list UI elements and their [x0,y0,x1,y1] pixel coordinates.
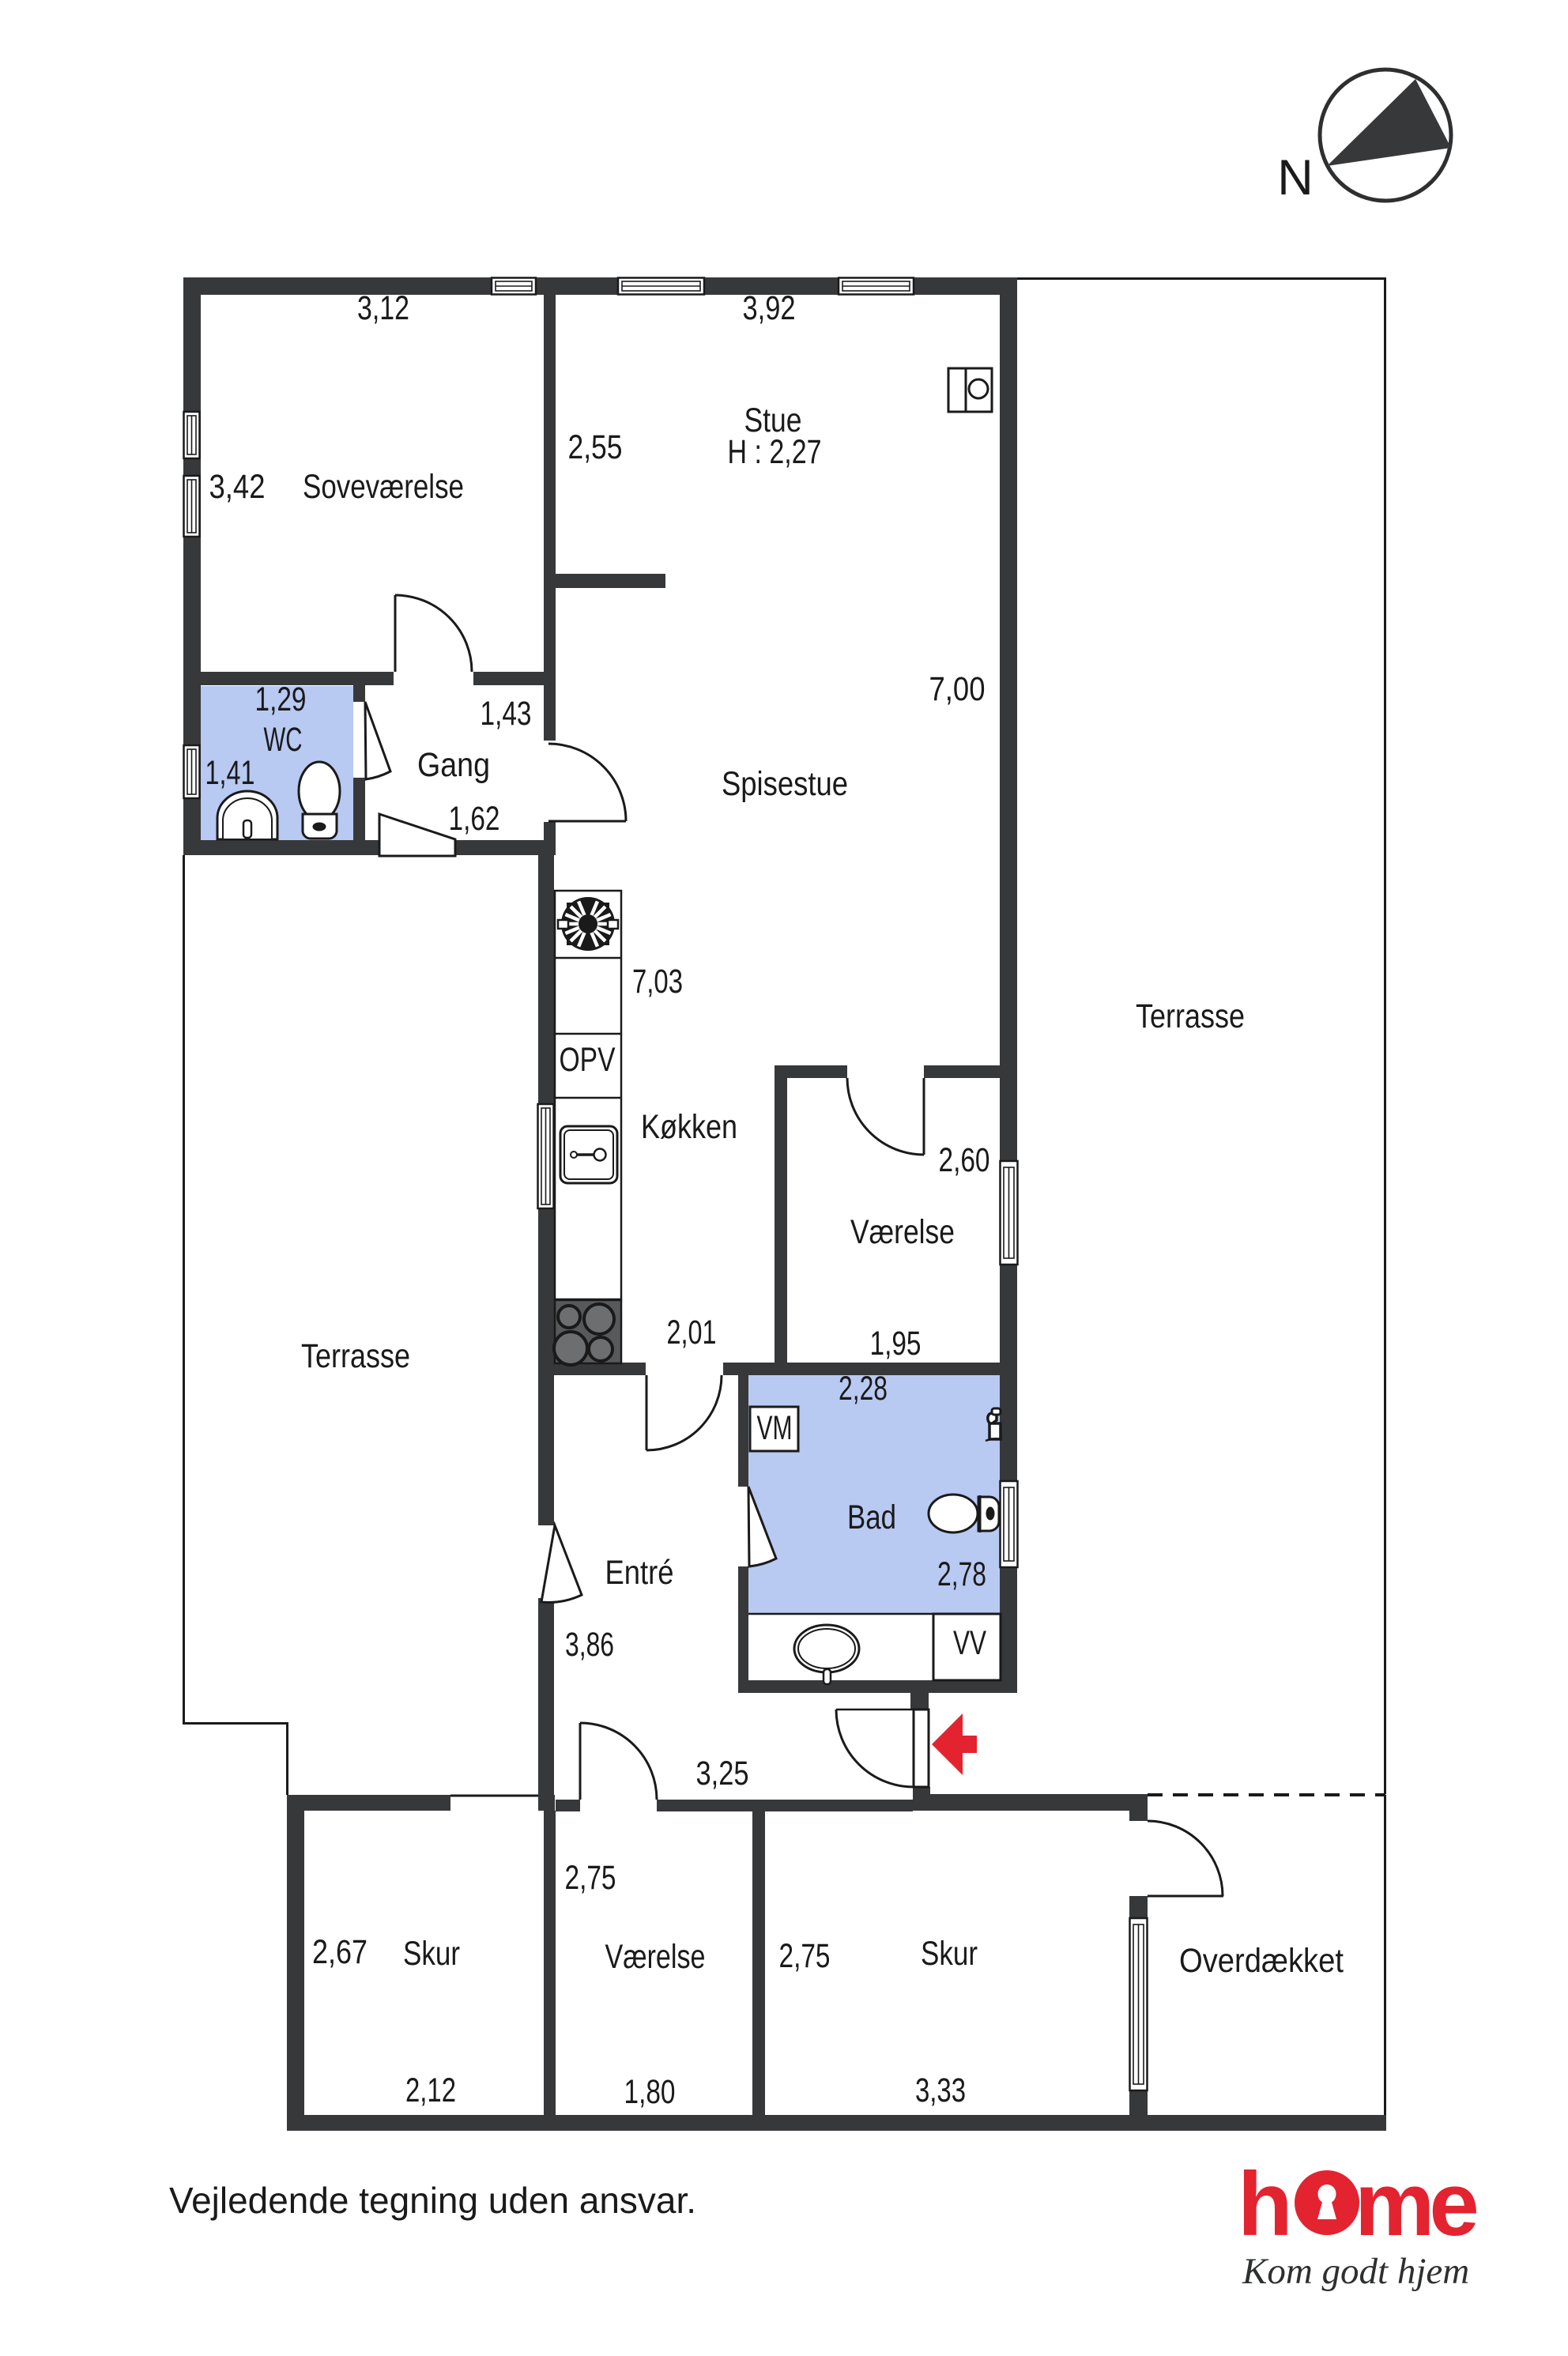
svg-text:3,42: 3,42 [209,468,266,506]
svg-text:3,92: 3,92 [743,289,796,327]
svg-text:1,29: 1,29 [255,680,307,718]
svg-text:3,12: 3,12 [357,289,409,327]
svg-text:Værelse: Værelse [605,1938,706,1976]
svg-text:7,00: 7,00 [929,670,986,708]
svg-text:Skur: Skur [403,1935,460,1973]
svg-text:Køkken: Køkken [641,1108,737,1146]
svg-text:2,01: 2,01 [667,1314,717,1351]
svg-text:N: N [1277,150,1314,205]
svg-text:VM: VM [757,1409,793,1447]
svg-text:Skur: Skur [921,1935,978,1973]
svg-text:me: me [1355,2154,1476,2255]
svg-text:Bad: Bad [847,1498,896,1536]
svg-text:Terrasse: Terrasse [301,1337,410,1375]
svg-text:VV: VV [953,1624,986,1662]
svg-text:Spisestue: Spisestue [722,765,848,803]
svg-text:WC: WC [264,721,303,759]
svg-text:3,86: 3,86 [565,1626,614,1664]
svg-text:1,41: 1,41 [205,754,255,792]
svg-text:2,28: 2,28 [839,1370,888,1408]
svg-text:2,67: 2,67 [312,1933,367,1971]
svg-text:7,03: 7,03 [632,963,683,1001]
svg-text:Gang: Gang [417,746,490,784]
svg-text:H : 2,27: H : 2,27 [728,433,822,471]
svg-text:h: h [1238,2154,1293,2255]
svg-text:Entré: Entré [605,1554,674,1592]
svg-text:1,62: 1,62 [449,800,500,838]
svg-text:Terrasse: Terrasse [1136,997,1245,1035]
svg-text:1,80: 1,80 [624,2073,676,2111]
svg-text:1,95: 1,95 [870,1325,922,1363]
svg-text:Vejledende tegning uden ansvar: Vejledende tegning uden ansvar. [169,2180,696,2221]
svg-text:3,33: 3,33 [915,2071,966,2109]
svg-text:3,25: 3,25 [696,1755,749,1792]
svg-text:Soveværelse: Soveværelse [303,468,464,506]
svg-text:OPV: OPV [560,1041,616,1079]
svg-text:Værelse: Værelse [850,1213,955,1251]
svg-text:1,43: 1,43 [481,695,532,733]
svg-text:Overdækket: Overdækket [1179,1942,1344,1980]
svg-text:2,78: 2,78 [937,1555,986,1593]
svg-text:2,55: 2,55 [568,428,623,466]
svg-text:2,75: 2,75 [779,1937,831,1975]
svg-text:2,75: 2,75 [565,1859,616,1897]
svg-text:Kom godt hjem: Kom godt hjem [1242,2251,1469,2292]
svg-text:2,12: 2,12 [405,2071,456,2109]
svg-text:2,60: 2,60 [939,1141,990,1179]
